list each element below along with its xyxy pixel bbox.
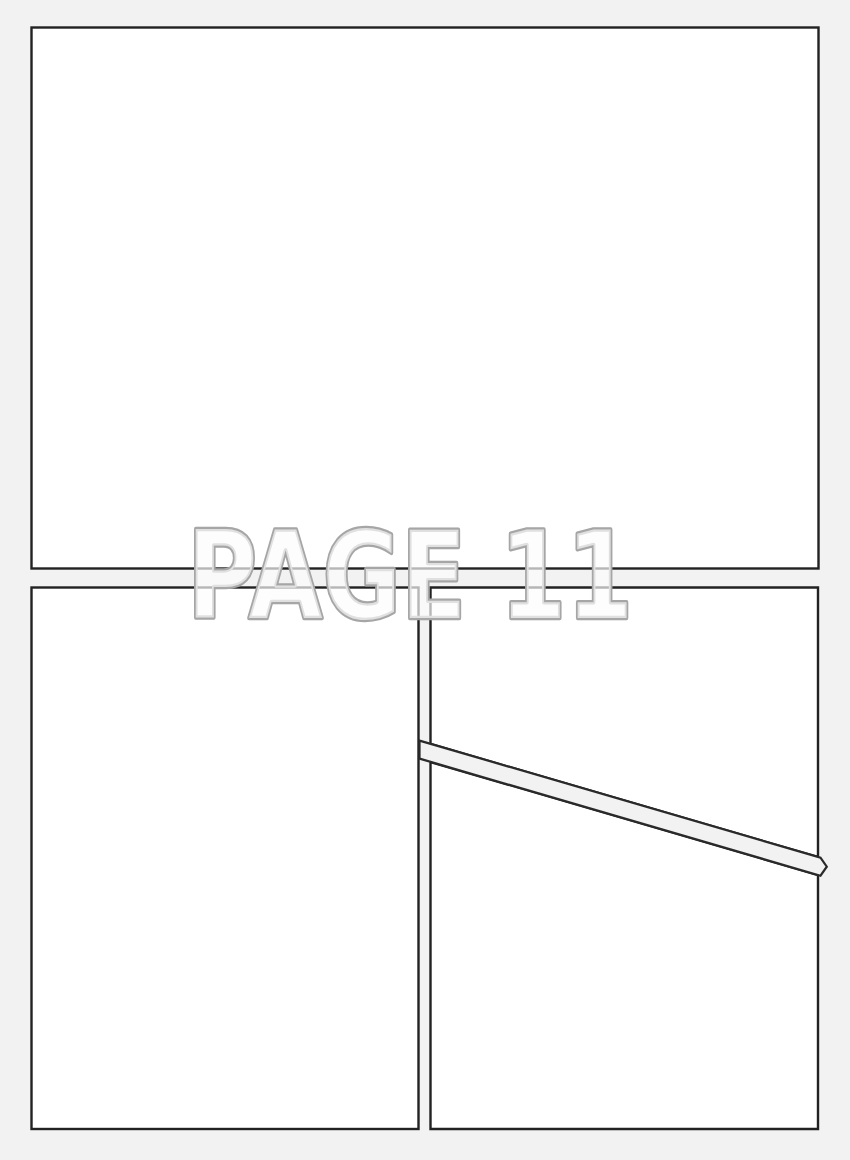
top-panel (32, 28, 819, 569)
comic-page-canvas: PAGE 11 (0, 0, 850, 1160)
page-watermark: PAGE 11 (187, 506, 633, 647)
comic-page: PAGE 11 (0, 0, 850, 1160)
bottom-left-panel (32, 588, 419, 1130)
